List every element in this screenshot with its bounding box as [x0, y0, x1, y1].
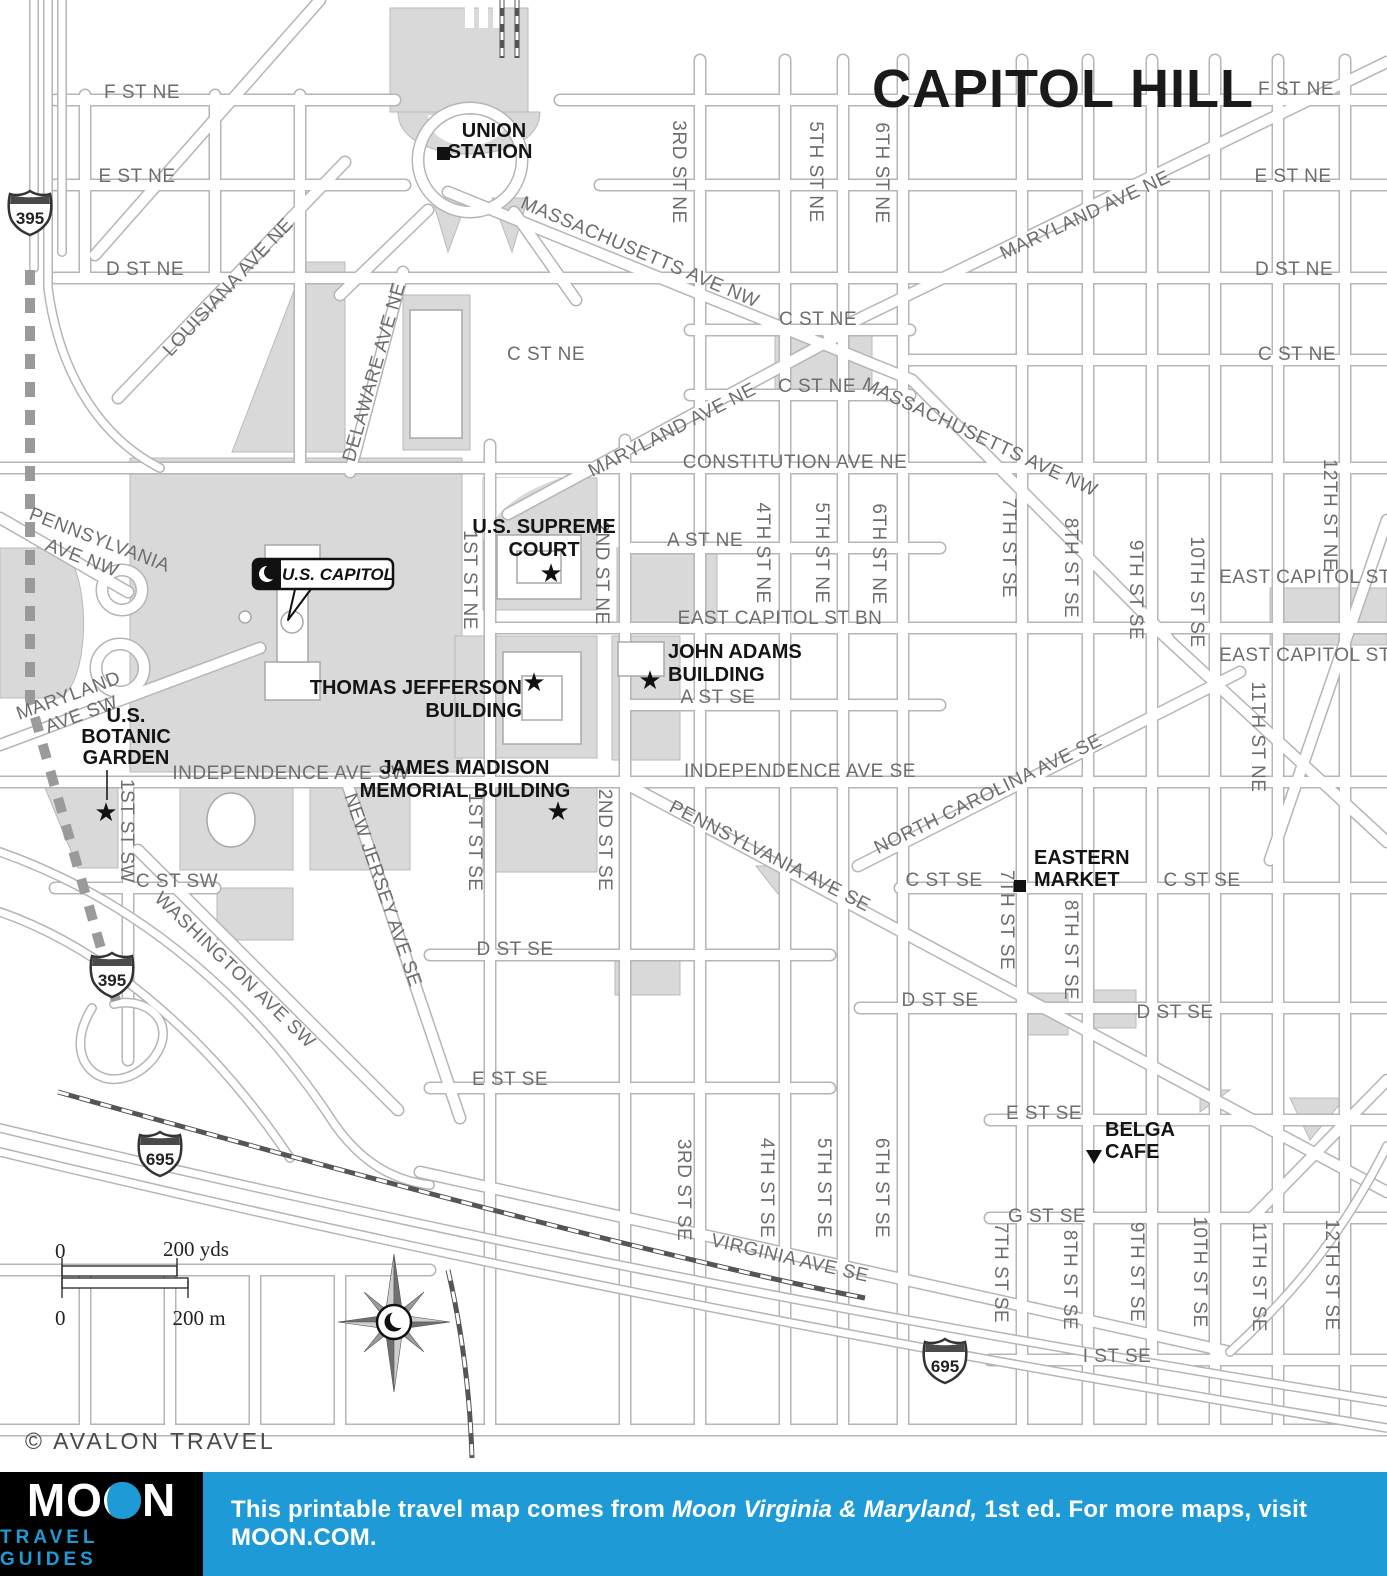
poi-label-union-station: UNION [462, 120, 526, 142]
street-label: EAST CAPITOL ST [1219, 645, 1387, 666]
street-label: 9TH ST SE [1126, 1222, 1147, 1322]
moon-wordmark-n: N [142, 1477, 176, 1523]
moon-travel-guides-logo: MON TRAVEL GUIDES [0, 1472, 203, 1576]
street-label: A ST NE [667, 530, 743, 551]
street-label: 1ST ST NE [459, 530, 480, 630]
poi-label-supreme-court: U.S. SUPREME [472, 516, 615, 538]
street-label: F ST NE [1258, 79, 1334, 100]
street-label: D ST SE [1136, 1002, 1213, 1023]
street-label: 6TH ST NE [868, 503, 889, 604]
star-marker: ★ [546, 797, 569, 827]
poi-label-john-adams-building: BUILDING [668, 664, 765, 686]
street-label: C ST NE [779, 309, 857, 330]
poi-label-botanic-garden: GARDEN [83, 747, 170, 769]
street-label: E ST SE [1006, 1103, 1082, 1124]
street-label: 7TH ST SE [990, 1223, 1011, 1323]
street-label: E ST SE [472, 1069, 548, 1090]
poi-label-eastern-market: EASTERN [1034, 847, 1130, 869]
square-marker [1014, 880, 1026, 892]
street-label: D ST NE [1255, 259, 1333, 280]
moon-wordmark-mo: MO [27, 1477, 103, 1523]
street-label: C ST SW [136, 871, 218, 892]
street-label: 1ST ST SE [464, 793, 485, 892]
star-marker: ★ [522, 668, 545, 698]
street-label: F ST NE [104, 82, 180, 103]
poi-label-jefferson-building: BUILDING [425, 700, 522, 722]
street-label: 8TH ST SE [1059, 1230, 1080, 1330]
footer-note: This printable travel map comes from Moo… [231, 1496, 1387, 1552]
street-label: CONSTITUTION AVE NE [683, 452, 908, 473]
svg-text:695: 695 [146, 1150, 174, 1169]
poi-label-union-station: STATION [448, 141, 533, 163]
map-canvas: F ST NE E ST NE D ST NE F ST NE E ST NE … [0, 0, 1387, 1472]
street-label: C ST NE [1258, 344, 1336, 365]
street-label: MASSACHUSETTS AVE NW [859, 374, 1101, 502]
street-label: DELAWARE AVE NE [339, 280, 410, 464]
poi-label-botanic-garden: U.S. [107, 705, 146, 727]
street-label: I ST SE [1083, 1346, 1152, 1367]
street-label: 8TH ST SE [1060, 518, 1081, 618]
street-label: G ST SE [1008, 1206, 1086, 1227]
scale-zero-m: 0 [55, 1306, 66, 1330]
street-label: 2ND ST SE [594, 789, 615, 891]
book-title: Moon Virginia & Maryland, [672, 1496, 977, 1523]
poi-label-belga-cafe: BELGA [1105, 1119, 1175, 1141]
street-label: C ST SE [905, 870, 982, 891]
street-label: 5TH ST NE [811, 502, 832, 603]
street-label: 7TH ST SE [996, 870, 1017, 970]
street-label: C ST NE [507, 344, 585, 365]
street-label: 3RD ST NE [668, 120, 689, 223]
street-label: E ST NE [98, 166, 175, 187]
street-label: A ST SE [681, 687, 756, 708]
scale-zero-yds: 0 [55, 1239, 66, 1263]
street-label: 7TH ST SE [998, 498, 1019, 598]
moon-wordmark: MON [27, 1477, 176, 1523]
poi-label-eastern-market: MARKET [1034, 869, 1120, 891]
poi-label-botanic-garden: BOTANIC [81, 726, 171, 748]
street-label: 5TH ST NE [805, 121, 826, 222]
street-label: 1ST ST SW [116, 779, 137, 883]
star-marker: ★ [539, 559, 562, 589]
poi-label-belga-cafe: CAFE [1105, 1141, 1159, 1163]
street-label: 5TH ST SE [813, 1138, 834, 1238]
street-label: EAST CAPITOL ST BN [678, 608, 883, 629]
street-label: D ST SE [476, 939, 553, 960]
street-label: 4TH ST NE [752, 502, 773, 603]
scale-m-label: 200 m [172, 1306, 225, 1330]
street-label: MASSACHUSETTS AVE NW [518, 193, 762, 313]
scale-yds-label: 200 yds [163, 1237, 229, 1261]
map-title: CAPITOL HILL [872, 59, 1254, 119]
star-marker: ★ [638, 666, 661, 696]
street-label: D ST NE [106, 259, 184, 280]
capitol-hill-map-page: F ST NE E ST NE D ST NE F ST NE E ST NE … [0, 0, 1387, 1576]
street-label: 10TH ST SE [1189, 1216, 1210, 1327]
logo-subtitle: TRAVEL GUIDES [0, 1527, 203, 1571]
poi-label-supreme-court: COURT [508, 539, 579, 561]
street-label: 6TH ST NE [871, 122, 892, 223]
poi-label-madison-building: MEMORIAL BUILDING [360, 780, 571, 802]
street-label: 3RD ST SE [673, 1139, 694, 1241]
footer: MON TRAVEL GUIDES This printable travel … [0, 1472, 1387, 1576]
street-label: 10TH ST SE [1186, 536, 1207, 647]
i695-shield: 695 [924, 1339, 967, 1383]
star-marker: ★ [94, 798, 117, 828]
svg-text:395: 395 [16, 209, 44, 228]
street-label: 4TH ST SE [756, 1138, 777, 1238]
street-label: 11TH ST NE [1247, 682, 1268, 793]
footer-banner: This printable travel map comes from Moo… [203, 1472, 1387, 1576]
svg-text:395: 395 [98, 971, 126, 990]
street-label: 8TH ST SE [1060, 900, 1081, 1000]
square-marker [437, 147, 450, 160]
svg-text:695: 695 [931, 1357, 959, 1376]
street-label: C ST NE [778, 376, 856, 397]
street-label: 11TH ST SE [1248, 1222, 1269, 1332]
street-label: D ST SE [901, 990, 978, 1011]
poi-label-john-adams-building: JOHN ADAMS [668, 641, 802, 663]
street-label: 12TH ST NE [1319, 459, 1340, 571]
copyright: © AVALON TRAVEL [25, 1428, 276, 1454]
street-label: EAST CAPITOL ST [1219, 567, 1387, 588]
poi-label-us-capitol: U.S. CAPITOL [282, 565, 394, 584]
street-label: 9TH ST SE [1125, 540, 1146, 640]
street-label: C ST SE [1163, 870, 1240, 891]
street-label: 12TH ST SE [1321, 1219, 1342, 1330]
street-label: E ST NE [1254, 166, 1331, 187]
moon-crescent-icon [104, 1482, 141, 1519]
poi-label-jefferson-building: THOMAS JEFFERSON [310, 677, 522, 699]
poi-label-madison-building: JAMES MADISON [381, 757, 550, 779]
street-label: 6TH ST SE [871, 1138, 892, 1238]
street-label: INDEPENDENCE AVE SE [684, 761, 916, 782]
